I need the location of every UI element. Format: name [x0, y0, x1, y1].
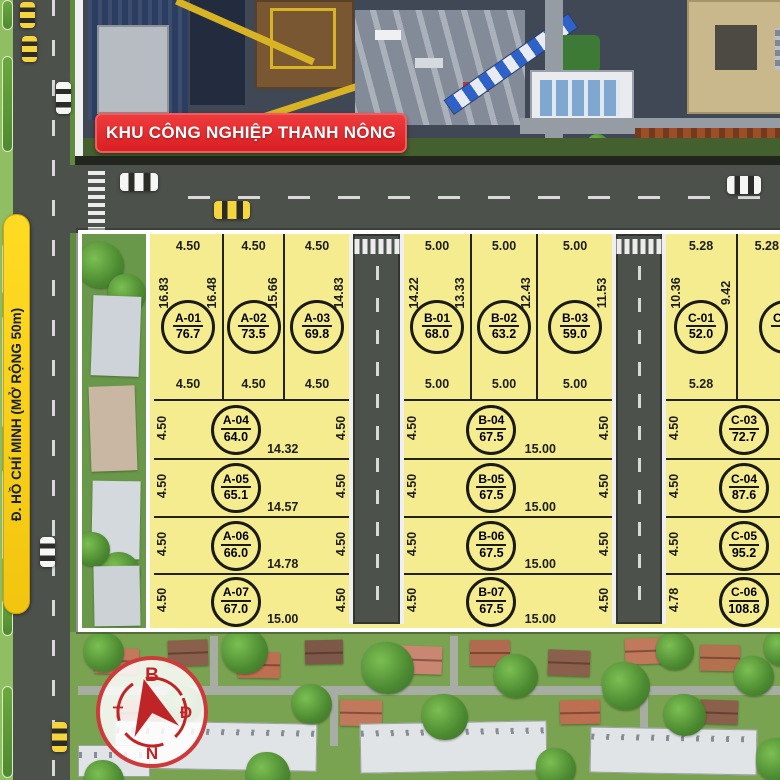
plot-id: A-01 [173, 312, 203, 328]
dim-left: 4.50 [667, 406, 681, 450]
house [305, 640, 343, 665]
plot-area: 67.5 [479, 430, 503, 445]
compass-east: Đ [180, 703, 192, 722]
plot-badge: B-01 68.0 [410, 300, 464, 354]
project-banner: KHU CÔNG NGHIỆP THANH NÔNG [95, 113, 407, 153]
plot-badge: B-03 59.0 [548, 300, 602, 354]
plot-badge: A-03 69.8 [290, 300, 344, 354]
car [22, 36, 37, 62]
subdivision-plan: 4.50 16.83 16.48 A-01 76.7 4.50 4.50 15.… [78, 230, 780, 632]
dim-left: 4.50 [155, 406, 169, 450]
dim-left: 4.50 [405, 406, 419, 450]
crosswalk [88, 171, 105, 231]
plot-area: 68.0 [425, 327, 449, 342]
glass-windows [540, 80, 620, 116]
plot-C-05[interactable]: 4.50 C-05 95.2 [666, 516, 780, 573]
plot-badge: B-02 63.2 [477, 300, 531, 354]
dim-bottom: 15.00 [525, 557, 556, 571]
dim-bottom: 4.50 [241, 377, 265, 391]
tree [222, 632, 268, 674]
existing-houses-strip [82, 234, 150, 628]
lane-dash-line [376, 266, 379, 612]
dim-top: 4.50 [241, 239, 265, 253]
plot-area: 63.2 [492, 327, 516, 342]
plot-id: C-03 [729, 414, 759, 430]
dim-top: 5.28 [755, 239, 779, 253]
plot-C-06[interactable]: 4.78 C-06 108.8 [666, 573, 780, 628]
road-name-text: Đ. HỒ CHÍ MINH (MỞ RỘNG 50m) [9, 307, 24, 520]
road-between-b-c [612, 234, 666, 624]
plot-area: 64.0 [224, 430, 248, 445]
plot-badge: C-02 6 [759, 300, 780, 354]
plot-badge: A-07 67.0 [211, 577, 261, 627]
dim-left: 4.50 [405, 522, 419, 566]
plot-badge: C-03 72.7 [719, 405, 769, 455]
road-between-a-b [349, 234, 404, 624]
plot-badge: B-05 67.5 [466, 463, 516, 513]
tree [756, 738, 780, 780]
dim-top: 5.00 [425, 239, 449, 253]
dim-bottom: 5.00 [425, 377, 449, 391]
plot-id: C-05 [729, 530, 759, 546]
road-median [2, 56, 13, 152]
plot-badge: B-04 67.5 [466, 405, 516, 455]
dim-top: 4.50 [176, 239, 200, 253]
dim-left: 4.50 [155, 578, 169, 622]
plot-id: A-05 [221, 473, 251, 489]
plot-area: 73.5 [241, 327, 265, 342]
car [214, 201, 250, 219]
car [56, 82, 71, 114]
plot-A-06[interactable]: 4.50 4.50 A-06 66.0 14.78 [154, 516, 349, 573]
plot-id: B-07 [476, 586, 506, 602]
plot-area: 108.8 [728, 602, 759, 617]
crosswalk [354, 239, 399, 254]
road-median [2, 0, 13, 30]
plot-B-02[interactable]: 5.00 12.43 B-02 63.2 5.00 [472, 234, 538, 399]
plot-A-03[interactable]: 4.50 14.83 A-03 69.8 4.50 [285, 234, 349, 399]
plot-id: A-07 [221, 586, 251, 602]
block-b: 5.00 14.22 13.33 B-01 68.0 5.00 5.00 12.… [404, 234, 612, 628]
dim-right: 4.50 [597, 406, 611, 450]
dim-bottom: 5.00 [492, 377, 516, 391]
plot-A-07[interactable]: 4.50 4.50 A-07 67.0 15.00 [154, 573, 349, 628]
tree [602, 662, 650, 710]
dim-bottom: 15.00 [525, 442, 556, 456]
lane-dash-line [52, 0, 55, 780]
plot-C-01[interactable]: 5.28 10.36 9.42 C-01 52.0 5.28 [666, 234, 738, 399]
plot-badge: C-05 95.2 [719, 521, 769, 571]
courtyard [715, 25, 757, 70]
plot-badge: A-02 73.5 [227, 300, 281, 354]
plot-C-03[interactable]: 4.50 C-03 72.7 [666, 399, 780, 458]
plot-id: A-02 [238, 312, 268, 328]
plot-badge: A-04 64.0 [211, 405, 261, 455]
dim-right: 4.50 [597, 522, 611, 566]
land-plot-map: KHU CÔNG NGHIỆP THANH NÔNG 4.50 [0, 0, 780, 780]
dim-top: 5.00 [563, 239, 587, 253]
plot-area: 95.2 [732, 546, 756, 561]
plot-area: 67.5 [479, 602, 503, 617]
tree [656, 632, 694, 670]
dim-left: 4.50 [155, 464, 169, 508]
plot-badge: B-06 67.5 [466, 521, 516, 571]
project-banner-label: KHU CÔNG NGHIỆP THANH NÔNG [106, 123, 396, 143]
plot-area: 67.5 [479, 488, 503, 503]
plot-badge: C-04 87.6 [719, 463, 769, 513]
dim-right: 4.50 [334, 522, 348, 566]
plot-A-04[interactable]: 4.50 4.50 A-04 64.0 14.32 [154, 399, 349, 458]
lane-dash-line [638, 266, 641, 612]
plot-B-03[interactable]: 5.00 11.53 B-03 59.0 5.00 [538, 234, 612, 399]
existing-building [93, 566, 140, 627]
block-b-row-1: 5.00 14.22 13.33 B-01 68.0 5.00 5.00 12.… [404, 234, 612, 399]
road-name-label: Đ. HỒ CHÍ MINH (MỞ RỘNG 50m) [3, 214, 30, 614]
dim-left: 4.50 [667, 464, 681, 508]
plot-area: 72.7 [732, 430, 756, 445]
plot-B-04[interactable]: 4.50 4.50 B-04 67.5 15.00 [404, 399, 612, 458]
plot-area: 67.5 [479, 546, 503, 561]
house [548, 649, 591, 676]
plot-badge: A-06 66.0 [211, 521, 261, 571]
plot-badge: A-05 65.1 [211, 463, 261, 513]
plot-id: B-05 [476, 473, 506, 489]
plot-area: 87.6 [732, 488, 756, 503]
road-median [2, 686, 13, 778]
dim-right: 4.50 [597, 464, 611, 508]
plot-badge: C-06 108.8 [719, 577, 769, 627]
plot-id: B-01 [422, 312, 452, 328]
block-c-row-1: 5.28 10.36 9.42 C-01 52.0 5.28 5.28 C-02 [666, 234, 780, 399]
dim-bottom: 4.50 [305, 377, 329, 391]
car [727, 176, 761, 194]
photo-border [75, 0, 83, 158]
dim-bottom: 15.00 [525, 500, 556, 514]
dim-right: 4.50 [334, 406, 348, 450]
dim-bottom: 14.57 [267, 500, 298, 514]
plot-badge: A-01 76.7 [161, 300, 215, 354]
dim-bottom: 4.50 [176, 377, 200, 391]
plot-area: 76.7 [176, 327, 200, 342]
plot-area: 69.8 [305, 327, 329, 342]
plot-id: A-04 [221, 414, 251, 430]
plot-id: B-02 [489, 312, 519, 328]
car [120, 173, 158, 191]
dim-left: 4.50 [667, 522, 681, 566]
plot-A-02[interactable]: 4.50 15.66 A-02 73.5 4.50 [224, 234, 285, 399]
tree [536, 748, 576, 780]
existing-building [91, 295, 142, 377]
warehouse-roof [97, 25, 169, 114]
car-park [775, 28, 780, 70]
block-c: 5.28 10.36 9.42 C-01 52.0 5.28 5.28 C-02 [666, 234, 780, 628]
compass-south: N [146, 744, 158, 763]
plot-B-06[interactable]: 4.50 4.50 B-06 67.5 15.00 [404, 516, 612, 573]
plot-area: 52.0 [689, 327, 713, 342]
plot-id: B-03 [560, 312, 590, 328]
plot-id: B-06 [476, 530, 506, 546]
dim-right: 11.53 [595, 271, 609, 315]
street [450, 636, 458, 688]
photo-bottom-edge [75, 156, 780, 165]
plot-A-01[interactable]: 4.50 16.83 16.48 A-01 76.7 4.50 [154, 234, 224, 399]
dim-bottom: 5.00 [563, 377, 587, 391]
plot-B-01[interactable]: 5.00 14.22 13.33 B-01 68.0 5.00 [404, 234, 472, 399]
car [52, 722, 67, 752]
car [40, 537, 55, 567]
dim-top: 5.28 [689, 239, 713, 253]
dim-top: 5.00 [492, 239, 516, 253]
plot-id: C-06 [729, 586, 759, 602]
dim-left: 4.50 [155, 522, 169, 566]
top-cross-road [70, 165, 780, 233]
dim-right: 4.50 [334, 578, 348, 622]
dim-top: 4.50 [305, 239, 329, 253]
plot-id: A-03 [302, 312, 332, 328]
plot-id: C-01 [686, 312, 716, 328]
dim-left: 4.78 [667, 578, 681, 622]
plot-id: B-04 [476, 414, 506, 430]
dim-bottom: 14.78 [267, 557, 298, 571]
apartment-building [590, 727, 758, 776]
lane-dash-line [188, 196, 780, 199]
block-a-row-1: 4.50 16.83 16.48 A-01 76.7 4.50 4.50 15.… [154, 234, 349, 399]
subdivision-plan-inner: 4.50 16.83 16.48 A-01 76.7 4.50 4.50 15.… [82, 234, 776, 628]
dim-left: 4.50 [405, 464, 419, 508]
existing-building [89, 385, 138, 472]
plot-id: C-02 [771, 312, 780, 328]
compass-north: B [145, 665, 159, 686]
truck [415, 58, 443, 68]
truck [375, 30, 401, 40]
car [20, 2, 35, 28]
dim-bottom: 15.00 [267, 612, 298, 626]
tree [292, 684, 332, 724]
plot-C-02[interactable]: 5.28 C-02 6 [738, 234, 780, 399]
compass-rose: B Đ N T [94, 654, 210, 770]
plot-C-04[interactable]: 4.50 C-04 87.6 [666, 458, 780, 516]
street [210, 636, 218, 688]
dim-right: 4.50 [597, 578, 611, 622]
tree [362, 642, 414, 694]
plot-area: 67.0 [224, 602, 248, 617]
plot-id: C-04 [729, 473, 759, 489]
dim-right: 4.50 [334, 464, 348, 508]
compass-west: T [113, 703, 124, 722]
tree [422, 694, 468, 740]
plot-B-05[interactable]: 4.50 4.50 B-05 67.5 15.00 [404, 458, 612, 516]
plot-A-05[interactable]: 4.50 4.50 A-05 65.1 14.57 [154, 458, 349, 516]
crosswalk [617, 239, 662, 254]
dim-bottom: 5.28 [689, 377, 713, 391]
plot-badge: C-01 52.0 [674, 300, 728, 354]
house [560, 700, 600, 725]
block-a: 4.50 16.83 16.48 A-01 76.7 4.50 4.50 15.… [154, 234, 349, 628]
tree [494, 654, 538, 698]
dim-bottom: 14.32 [267, 442, 298, 456]
tree [664, 694, 706, 736]
plot-area: 59.0 [563, 327, 587, 342]
tree [734, 656, 774, 696]
dim-left: 4.50 [405, 578, 419, 622]
plot-B-07[interactable]: 4.50 4.50 B-07 67.5 15.00 [404, 573, 612, 628]
plot-area: 66.0 [224, 546, 248, 561]
dim-bottom: 15.00 [525, 612, 556, 626]
plot-badge: B-07 67.5 [466, 577, 516, 627]
plot-id: A-06 [221, 530, 251, 546]
plot-area: 65.1 [224, 488, 248, 503]
